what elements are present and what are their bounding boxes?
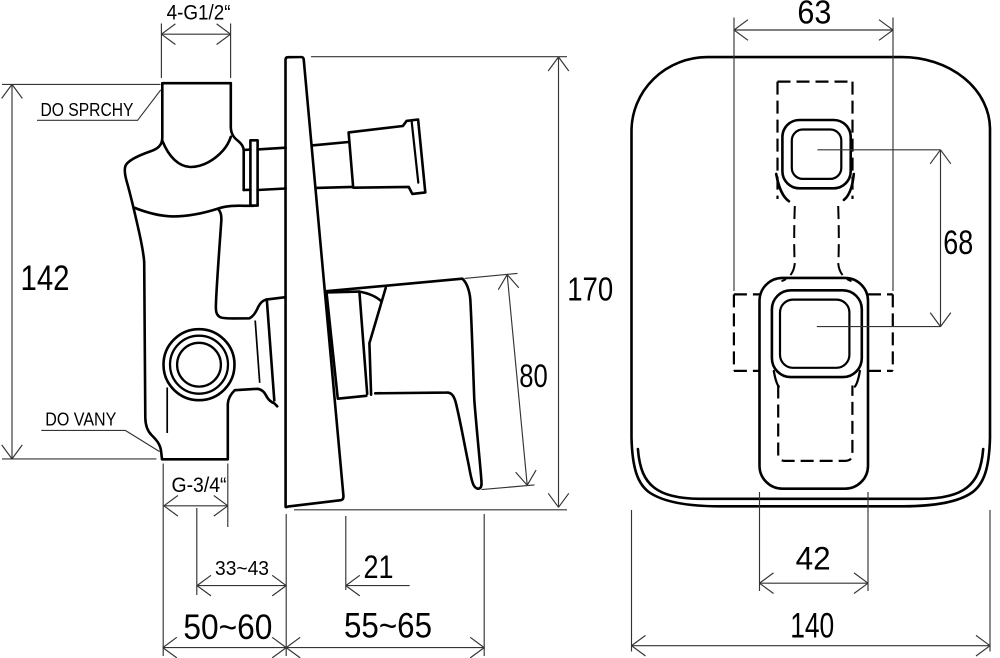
svg-text:170: 170 — [567, 271, 613, 308]
svg-text:142: 142 — [21, 259, 70, 298]
svg-text:G-3/4“: G-3/4“ — [172, 473, 227, 497]
svg-text:42: 42 — [796, 540, 831, 576]
svg-text:63: 63 — [797, 0, 831, 31]
svg-text:21: 21 — [364, 549, 394, 585]
svg-text:68: 68 — [943, 224, 973, 262]
svg-text:DO VANY: DO VANY — [45, 408, 116, 429]
svg-text:140: 140 — [790, 607, 834, 646]
svg-text:50~60: 50~60 — [183, 608, 272, 647]
svg-text:33~43: 33~43 — [215, 558, 269, 580]
svg-text:55~65: 55~65 — [344, 607, 432, 646]
svg-text:DO SPRCHY: DO SPRCHY — [41, 99, 134, 120]
svg-text:4-G1/2“: 4-G1/2“ — [167, 1, 231, 24]
svg-text:80: 80 — [519, 358, 548, 394]
